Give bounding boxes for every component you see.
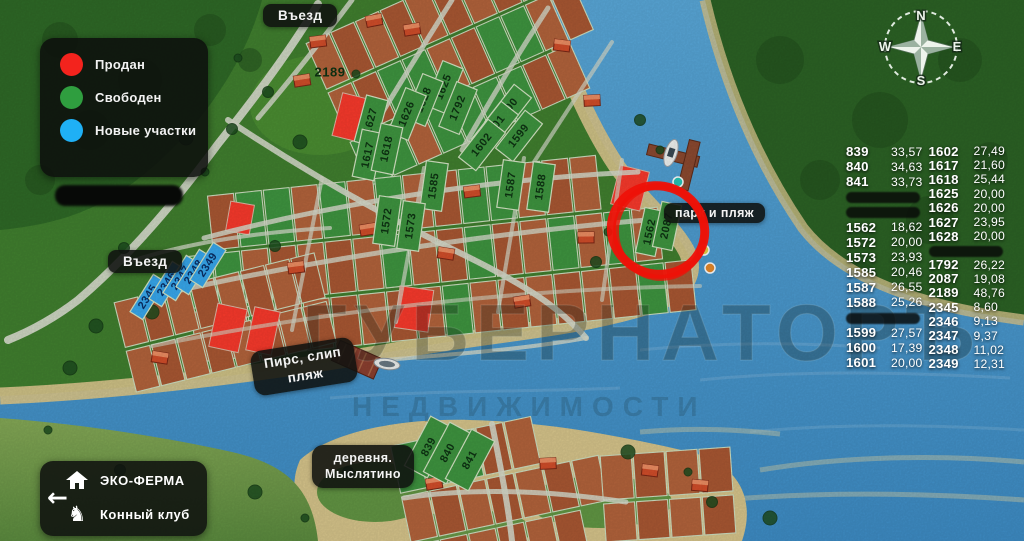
plot-area-value: 18,62 xyxy=(891,220,923,234)
price-row-redacted xyxy=(846,310,923,325)
price-row: 158825,26 xyxy=(846,295,923,310)
price-row: 23458,60 xyxy=(929,300,1006,314)
entrance-badge-top: Въезд xyxy=(263,4,337,27)
plot-area-value: 20,00 xyxy=(891,235,923,249)
plot-area-value: 20,00 xyxy=(974,201,1006,215)
plot-id: 1587 xyxy=(846,280,886,295)
plot-area-value: 11,02 xyxy=(974,343,1005,357)
plot-id: 1618 xyxy=(929,172,969,187)
redacted-bar xyxy=(846,207,920,218)
plot-area-value: 8,60 xyxy=(974,300,999,314)
plot-id: 1602 xyxy=(929,144,969,159)
plot-area-value: 23,95 xyxy=(974,215,1006,229)
watermark-line2: НЕДВИЖИМОСТИ xyxy=(352,391,706,422)
plot-area-value: 23,93 xyxy=(891,250,923,264)
eco-farm-panel: ЭКО-ФЕРМА ← ♞ Конный клуб xyxy=(40,461,207,536)
plot-area-value: 48,76 xyxy=(974,286,1006,300)
price-row: 159927,57 xyxy=(846,325,923,340)
price-row-redacted xyxy=(846,204,923,219)
price-row: 83933,57 xyxy=(846,144,923,159)
plot-area-value: 27,57 xyxy=(891,326,923,340)
village-badge-line1: деревня. xyxy=(325,450,401,466)
plot-id: 841 xyxy=(846,174,886,189)
plot-id: 1562 xyxy=(846,220,886,235)
plot-id: 2345 xyxy=(929,300,969,315)
legend-panel: ПроданСвободенНовые участки xyxy=(40,38,208,177)
price-table-right-column: 160227,49161721,60161825,44162520,001626… xyxy=(929,144,1006,371)
plot-id: 839 xyxy=(846,144,886,159)
village-badge: деревня. Мыслятино xyxy=(312,445,414,488)
price-row: 84133,73 xyxy=(846,174,923,189)
plot-area-value: 33,57 xyxy=(891,145,923,159)
price-row: 218948,76 xyxy=(929,286,1006,300)
compass-s: S xyxy=(917,73,926,88)
plot-area-value: 12,31 xyxy=(974,357,1006,371)
price-row: 23479,37 xyxy=(929,328,1006,342)
plot-id: 1625 xyxy=(929,186,969,201)
plot-area-value: 25,26 xyxy=(891,295,923,309)
plot-area-value: 27,49 xyxy=(974,144,1006,158)
plot-area-value: 20,00 xyxy=(974,229,1006,243)
price-row: 162520,00 xyxy=(929,187,1006,201)
price-row: 84034,63 xyxy=(846,159,923,174)
plot-area-value: 20,46 xyxy=(891,265,923,279)
plot-id: 840 xyxy=(846,159,886,174)
plot-area-value: 34,63 xyxy=(891,160,923,174)
legend-item-label: Свободен xyxy=(95,90,162,105)
price-row: 158726,55 xyxy=(846,280,923,295)
eco-farm-label: ЭКО-ФЕРМА xyxy=(100,473,185,488)
redacted-bar xyxy=(929,246,1003,257)
plot-area-value: 9,37 xyxy=(974,329,999,343)
plot-id: 1600 xyxy=(846,340,886,355)
price-row-redacted xyxy=(846,189,923,204)
plot-id: 1572 xyxy=(846,235,886,250)
plot-area-value: 17,39 xyxy=(891,341,923,355)
compass-n: N xyxy=(916,8,925,23)
plot-area-value: 26,22 xyxy=(974,258,1006,272)
plot-id: 1599 xyxy=(846,325,886,340)
price-row: 161825,44 xyxy=(929,172,1006,186)
plot-id: 2347 xyxy=(929,328,969,343)
compass-w: W xyxy=(879,39,892,54)
price-row: 179226,22 xyxy=(929,258,1006,272)
price-row: 157323,93 xyxy=(846,250,923,265)
plot-id: 1792 xyxy=(929,257,969,272)
price-row: 162820,00 xyxy=(929,229,1006,243)
legend-item-label: Продан xyxy=(95,57,145,72)
plot-area-value: 20,00 xyxy=(891,356,923,370)
price-row: 162620,00 xyxy=(929,201,1006,215)
entrance-badge-left: Въезд xyxy=(108,250,182,273)
legend-color-dot xyxy=(60,119,83,142)
legend-item: Свободен xyxy=(60,85,162,109)
plot-id: 2346 xyxy=(929,314,969,329)
plot-id: 2348 xyxy=(929,342,969,357)
price-row: 234811,02 xyxy=(929,343,1006,357)
plot-area-value: 25,44 xyxy=(974,172,1006,186)
plot-id: 1601 xyxy=(846,355,886,370)
plot-area-value: 26,55 xyxy=(891,280,923,294)
plot-id: 2189 xyxy=(929,285,969,300)
plot-id: 1573 xyxy=(846,250,886,265)
price-row: 158520,46 xyxy=(846,265,923,280)
plot-id: 1588 xyxy=(846,295,886,310)
horse-club-label: Конный клуб xyxy=(100,507,190,522)
price-row: 160120,00 xyxy=(846,355,923,370)
price-row: 234912,31 xyxy=(929,357,1006,371)
plot-area-value: 20,00 xyxy=(974,187,1006,201)
price-row: 160017,39 xyxy=(846,340,923,355)
plot-id: 2349 xyxy=(929,356,969,371)
price-row: 160227,49 xyxy=(929,144,1006,158)
plot-area-value: 33,73 xyxy=(891,175,923,189)
park-beach-badge: парк и пляж xyxy=(664,203,765,223)
plot-id: 1626 xyxy=(929,200,969,215)
price-row: 162723,95 xyxy=(929,215,1006,229)
horse-icon: ♞ xyxy=(64,504,90,524)
village-badge-line2: Мыслятино xyxy=(325,466,401,482)
price-row: 157220,00 xyxy=(846,235,923,250)
legend-color-dot xyxy=(60,86,83,109)
price-row-redacted xyxy=(929,243,1006,257)
legend-item: Новые участки xyxy=(60,118,196,142)
plot-id: 1585 xyxy=(846,265,886,280)
plot-area-value: 19,08 xyxy=(974,272,1006,286)
price-table: 83933,5784034,6384133,73156218,62157220,… xyxy=(846,144,1024,371)
price-table-left-column: 83933,5784034,6384133,73156218,62157220,… xyxy=(846,144,923,371)
compass-e: E xyxy=(953,39,962,54)
plot-area-value: 9,13 xyxy=(974,314,999,328)
legend-item-label: Новые участки xyxy=(95,123,196,138)
plot-id: 1627 xyxy=(929,215,969,230)
redacted-bar xyxy=(846,192,920,203)
legend-color-dot xyxy=(60,53,83,76)
plot-area-value: 21,60 xyxy=(974,158,1006,172)
plot-id: 1628 xyxy=(929,229,969,244)
plot-map-image: 2189162716251628162617921600160116021599… xyxy=(0,0,1024,541)
price-row: 156218,62 xyxy=(846,219,923,234)
price-row: 23469,13 xyxy=(929,314,1006,328)
price-row: 161721,60 xyxy=(929,158,1006,172)
price-row: 208719,08 xyxy=(929,272,1006,286)
redacted-bar xyxy=(846,313,920,324)
legend-item: Продан xyxy=(60,52,145,76)
plot-id: 1617 xyxy=(929,158,969,173)
legend-redacted-logo xyxy=(55,185,183,206)
